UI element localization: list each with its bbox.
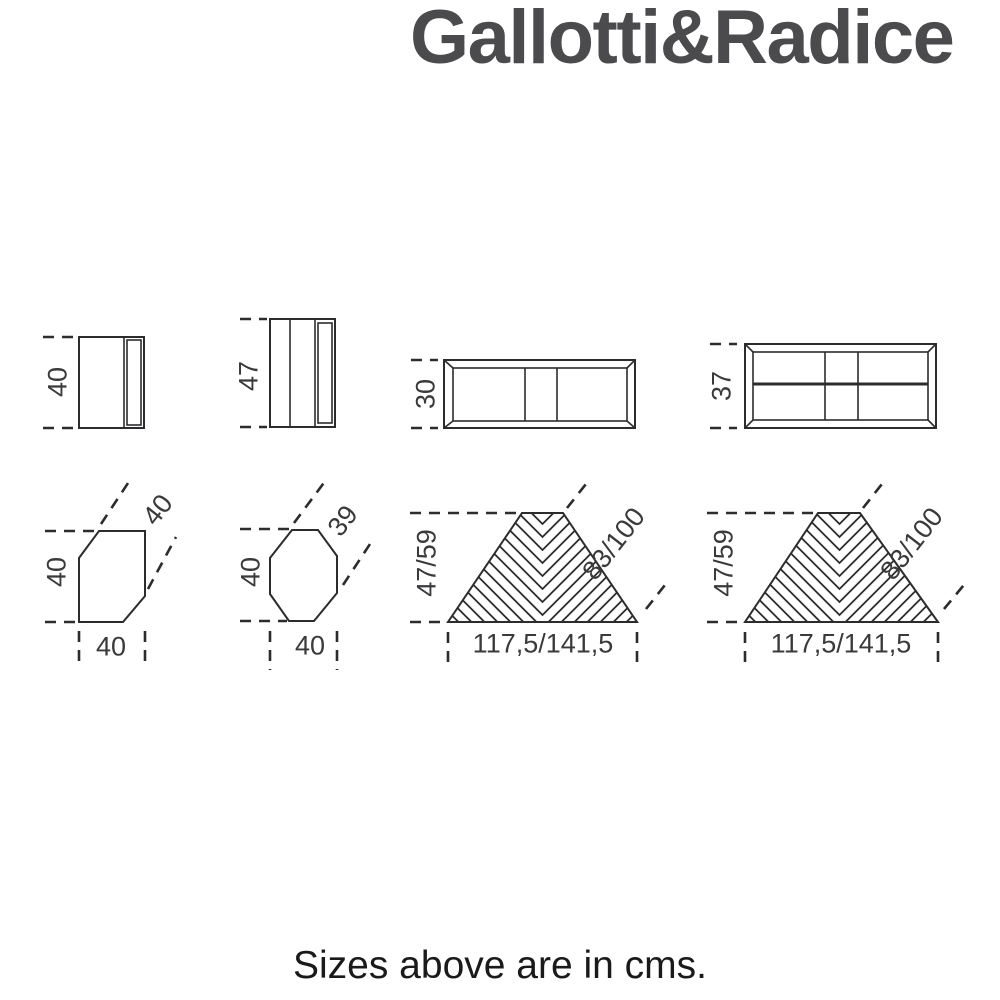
octagon-width-label: 40 — [295, 631, 325, 662]
octagon-depth-label: 40 — [236, 557, 267, 587]
trapezoid-left-depth-label: 47/59 — [412, 529, 443, 597]
elevation-side-tall-height-label: 47 — [234, 361, 265, 391]
trapezoid-left-width-label: 117,5/141,5 — [473, 629, 614, 660]
dimension-sheet: Gallotti&Radice — [0, 0, 1000, 1000]
elevation-front-high-height-label: 37 — [707, 371, 738, 401]
hexagon-width-label: 40 — [96, 632, 126, 663]
trapezoid-right-depth-label: 47/59 — [709, 529, 740, 597]
elevation-front-low-drawing — [411, 360, 635, 428]
units-caption: Sizes above are in cms. — [0, 946, 1000, 985]
trapezoid-right-width-label: 117,5/141,5 — [771, 629, 912, 660]
plan-trapezoid-left-drawing — [325, 479, 761, 706]
hexagon-depth-label: 40 — [42, 557, 73, 587]
elevation-side-small-height-label: 40 — [43, 367, 74, 397]
elevation-front-low-height-label: 30 — [411, 379, 442, 409]
elevation-front-high-drawing — [710, 344, 936, 428]
